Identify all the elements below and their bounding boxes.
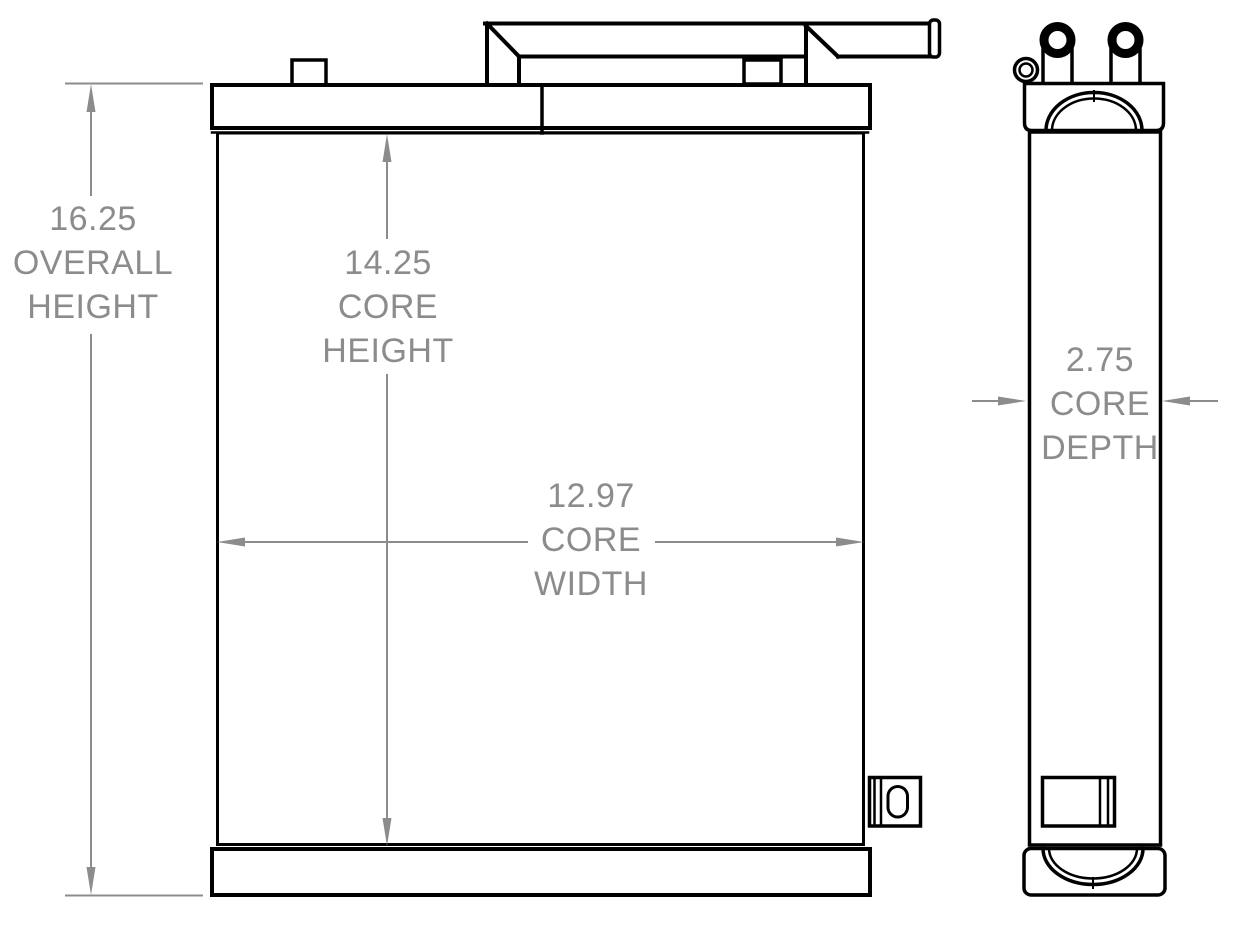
front-view (212, 20, 940, 895)
overall-height-arrow-down (87, 867, 96, 895)
tube-1-ring-flange (1044, 27, 1071, 54)
core-height-arrow-down (383, 818, 392, 846)
side-bracket-body (1043, 778, 1115, 827)
overall-height-label: 16.25 OVERALL HEIGHT (13, 197, 173, 329)
core-height-label-line3: HEIGHT (322, 329, 453, 373)
core-depth-arrow-right (1162, 397, 1190, 406)
outlet-pipe-end-cap (930, 20, 940, 57)
core-height-value: 14.25 (322, 241, 453, 285)
core-width-arrow-left (217, 538, 245, 547)
bracket-slot (888, 787, 908, 818)
front-bottom-tank (212, 849, 870, 895)
technical-drawing-canvas: 16.25 OVERALL HEIGHT 14.25 CORE HEIGHT 1… (0, 0, 1260, 935)
overall-height-arrow-up (87, 84, 96, 112)
core-height-label: 14.25 CORE HEIGHT (322, 241, 453, 373)
overall-height-value: 16.25 (13, 197, 173, 241)
cap-fitting (1015, 59, 1038, 82)
overall-height-label-line2: OVERALL (13, 241, 173, 285)
core-height-label-line2: CORE (322, 285, 453, 329)
overall-height-label-line3: HEIGHT (13, 285, 173, 329)
inlet-tubes (1043, 27, 1140, 85)
core-width-arrow-right (836, 538, 864, 547)
core-depth-label-line2: CORE (1041, 382, 1159, 426)
duct-bracket (744, 60, 781, 84)
core-width-label-line3: WIDTH (534, 562, 648, 606)
cap-fitting-outer (1015, 59, 1038, 82)
side-mounting-bracket (1043, 778, 1115, 827)
front-mounting-bracket (870, 778, 921, 827)
core-depth-value: 2.75 (1041, 338, 1159, 382)
core-height-arrow-up (383, 134, 392, 162)
duct-right-chamfer (806, 26, 838, 57)
core-depth-arrow-left (998, 397, 1026, 406)
tube-2-ring-flange (1112, 27, 1139, 54)
filler-neck-tab (292, 60, 326, 85)
core-depth-label-line3: DEPTH (1041, 426, 1159, 470)
core-depth-label: 2.75 CORE DEPTH (1041, 338, 1159, 470)
top-duct-assembly (485, 20, 940, 85)
duct-left-chamfer (487, 24, 519, 57)
core-width-label-line2: CORE (534, 518, 648, 562)
core-width-value: 12.97 (534, 474, 648, 518)
side-body (1030, 132, 1161, 845)
core-width-label: 12.97 CORE WIDTH (534, 474, 648, 606)
